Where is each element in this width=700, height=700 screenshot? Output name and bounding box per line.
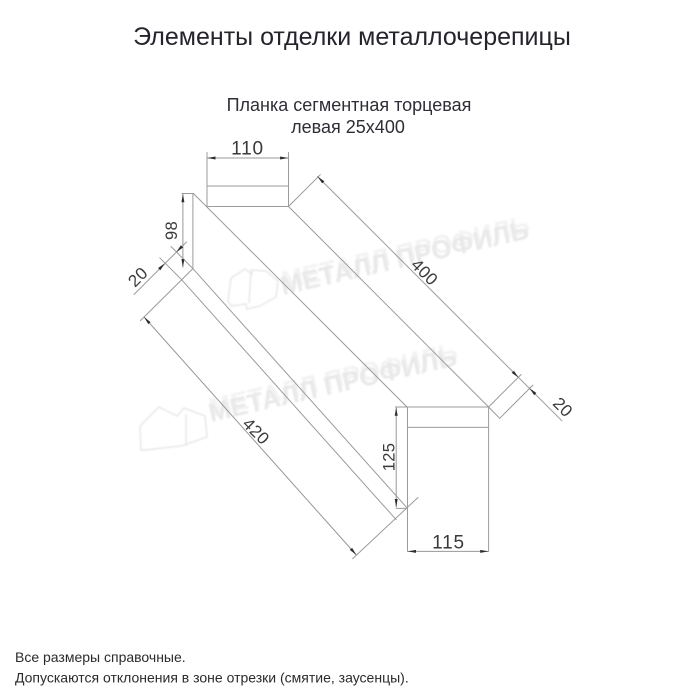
svg-text:Допускаются отклонения в зоне: Допускаются отклонения в зоне отрезки (с… bbox=[15, 670, 409, 686]
svg-text:125: 125 bbox=[380, 443, 398, 471]
svg-text:98: 98 bbox=[163, 221, 181, 240]
svg-text:левая 25х400: левая 25х400 bbox=[291, 117, 405, 137]
svg-text:110: 110 bbox=[231, 139, 264, 160]
svg-text:Элементы отделки металлочерепи: Элементы отделки металлочерепицы bbox=[133, 23, 571, 51]
svg-text:Все размеры справочные.: Все размеры справочные. bbox=[15, 649, 186, 665]
svg-text:Планка сегментная торцевая: Планка сегментная торцевая bbox=[227, 95, 472, 115]
svg-text:115: 115 bbox=[432, 533, 465, 554]
